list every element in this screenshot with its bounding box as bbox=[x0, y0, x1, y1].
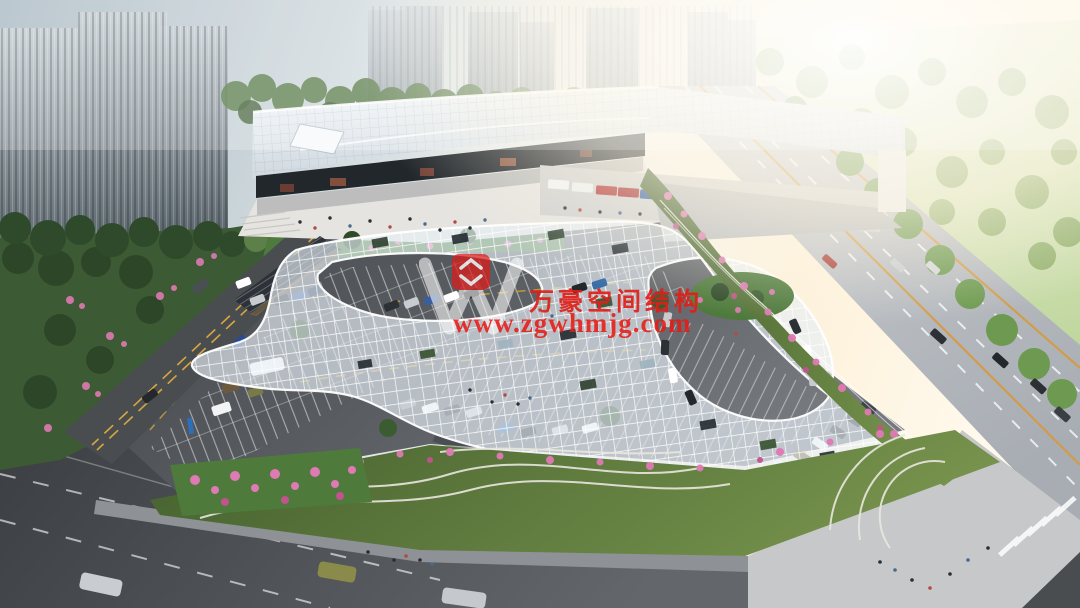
scene-canvas bbox=[0, 0, 1080, 608]
architectural-aerial-rendering: 万豪空间结构 www.zgwhmjg.com bbox=[0, 0, 1080, 608]
distance-haze bbox=[0, 0, 1080, 150]
